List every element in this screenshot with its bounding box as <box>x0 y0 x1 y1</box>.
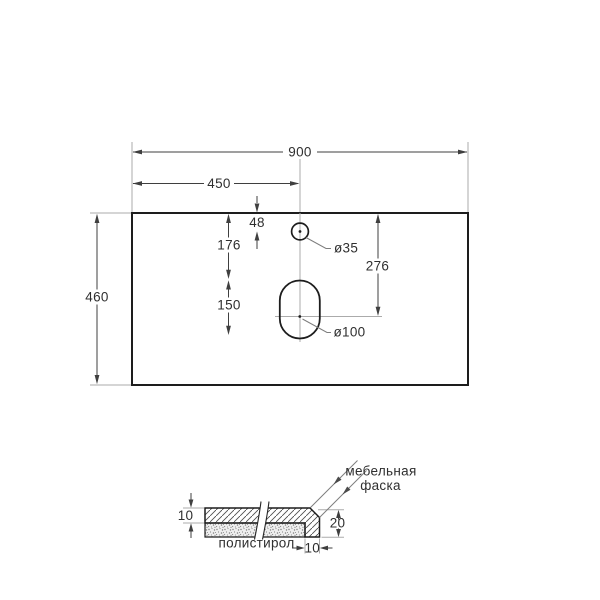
faucet-hole-label: ø35 <box>334 241 358 256</box>
arrow-right <box>458 150 468 155</box>
dim-text-900: 900 <box>288 145 311 160</box>
drain-hole-label: ø100 <box>334 325 366 340</box>
chamfer-callout: мебельная фаска <box>311 461 417 518</box>
arrow-up <box>95 214 100 223</box>
dim-text-150: 150 <box>217 298 240 313</box>
dim-text-460: 460 <box>85 290 108 305</box>
arrow-right <box>297 546 305 551</box>
dim-text-edge-20: 20 <box>330 516 346 531</box>
chamfer-label-line2: фаска <box>360 478 401 493</box>
arrow-left <box>133 181 143 186</box>
arrow-right <box>290 181 300 186</box>
dim-text-450: 450 <box>207 176 230 191</box>
dim-text-edge-width-10: 10 <box>304 541 320 556</box>
dim-text-276: 276 <box>366 259 389 274</box>
chamfer-label-line1: мебельная <box>345 464 416 479</box>
section-view: 10 20 10 полистирол мебельная фаска <box>178 461 417 556</box>
arrow-up <box>189 523 194 531</box>
dim-text-176: 176 <box>217 238 240 253</box>
drawing-page: 900 450 48 176 <box>0 0 600 600</box>
arrow-down <box>189 500 194 508</box>
faucet-hole-center <box>299 230 302 233</box>
drain-hole-center <box>298 315 301 318</box>
polystyrene-label: полистирол <box>218 536 294 551</box>
top-view: 900 450 48 176 <box>85 142 468 385</box>
dim-text-48: 48 <box>249 215 265 230</box>
arrow-left <box>133 150 143 155</box>
arrow-left <box>320 546 328 551</box>
arrow-down <box>95 375 100 384</box>
arrow-down <box>255 204 260 213</box>
technical-drawing: 900 450 48 176 <box>0 0 600 600</box>
dim-text-thickness-10: 10 <box>178 508 194 523</box>
